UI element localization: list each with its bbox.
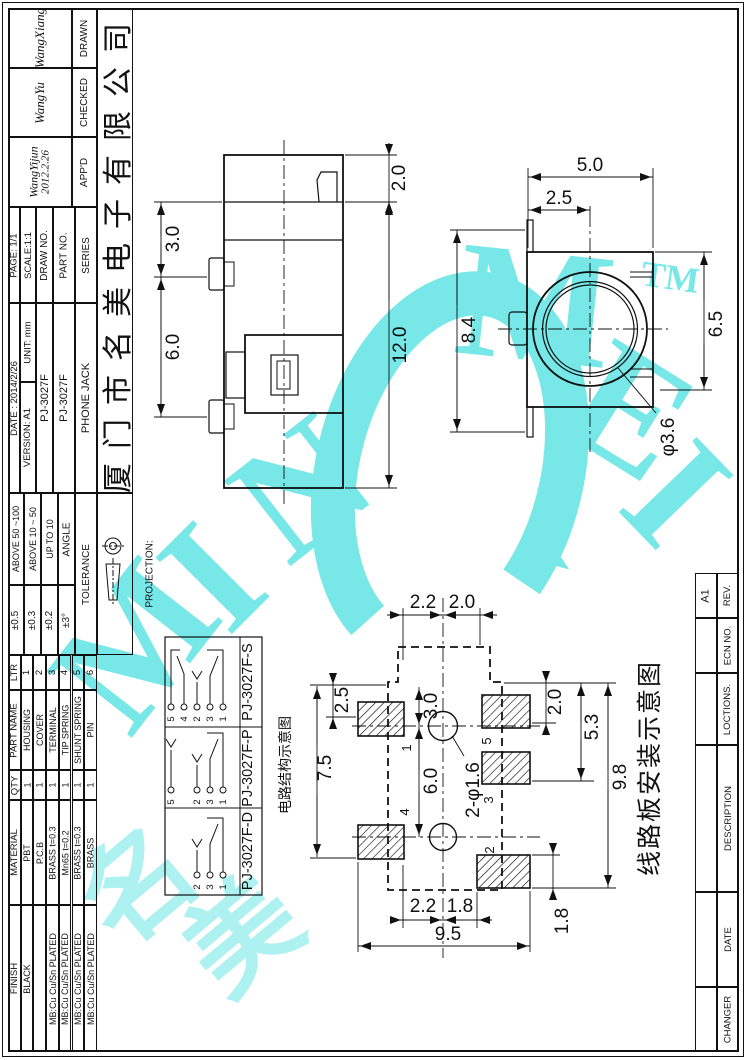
bom-row: BRASS t=0.3: [72, 800, 85, 905]
draw-no-label-cell: DRAW NO.: [36, 207, 53, 303]
date-cell: DATE : 2014/2/26: [8, 303, 20, 493]
bom-row: HOUSING: [21, 690, 34, 770]
company-name: 厦门市名美电子有限公司: [93, 9, 137, 493]
drawn-label: DRAWN: [79, 19, 90, 56]
bom-row: MB:Cu Cu/Sn PLATED: [84, 905, 97, 1052]
rev-value: A1: [700, 589, 712, 602]
description-label: DESCRIPTION: [723, 786, 734, 851]
appd-label: APP'D: [79, 157, 90, 186]
series-label-cell: SERIES: [75, 207, 97, 303]
bom-row: Mn65 t=0.2: [59, 800, 72, 905]
bom-row: 3: [46, 655, 59, 690]
description-value-cell: [695, 745, 717, 892]
scale-cell: SCALE:1:1: [20, 207, 36, 303]
bom-row: P.C.B: [33, 800, 46, 905]
bom-ltr-header: LTR: [9, 664, 20, 681]
bom-row: MB:Cu Cu/Sn PLATED: [72, 905, 85, 1052]
tol-value-3: ±0.5: [11, 610, 22, 629]
bom-row: PIN: [84, 690, 97, 770]
checked-label: CHECKED: [79, 78, 90, 127]
tol-range-1: UP TO 10: [45, 519, 55, 559]
part-no-label: PART NO.: [59, 232, 70, 278]
page-cell: PAGE: 1/1: [8, 207, 20, 303]
date-value: DATE : 2014/2/26: [9, 361, 20, 436]
tol-value-1: ±0.2: [44, 610, 55, 629]
rev-label-cell: REV.: [717, 573, 739, 618]
tol-angle-value: ±3°: [61, 612, 72, 627]
bom-qty-header-cell: QTY: [8, 770, 21, 800]
tol-range-3-cell: ABOVE 50 ~100: [8, 493, 24, 585]
ecn-label-cell: ECN NO.: [717, 618, 739, 673]
bom-row: [33, 905, 46, 1052]
rev-date-label-cell: DATE: [717, 892, 739, 987]
bom-finish-header-cell: FINISH: [8, 905, 21, 1052]
changer-label: CHANGER: [723, 996, 734, 1044]
draw-no-label: DRAW NO.: [39, 230, 50, 281]
tol-value-3-cell: ±0.5: [8, 585, 24, 655]
projection-label: PROJECTION:: [70, 540, 230, 607]
projection-cell: PROJECTION:: [97, 493, 133, 655]
rev-label: REV.: [723, 585, 734, 606]
draw-no-value: PJ-3027F: [39, 374, 51, 422]
bom-row: 6: [84, 655, 97, 690]
bom-row: COVER: [33, 690, 46, 770]
company-cell: 厦门市名美电子有限公司: [97, 8, 133, 493]
part-no-value: PJ-3027F: [58, 374, 70, 422]
bom-partname-header: PART NAME: [9, 703, 20, 757]
loctions-value-cell: [695, 673, 717, 745]
changer-value-cell: [695, 987, 717, 1052]
tol-range-2-cell: ABOVE 10 ~ 50: [24, 493, 41, 585]
bom-row: PBT: [21, 800, 34, 905]
version-cell: VERSION: A1: [20, 382, 36, 493]
tol-range-2: ABOVE 10 ~ 50: [28, 507, 38, 571]
bom-row: 1: [21, 655, 34, 690]
unit-value: UNIT: mm: [23, 321, 34, 363]
bom-qty-header: QTY: [9, 775, 20, 795]
bom-row: 1: [21, 770, 34, 800]
bom-material-header: MATERIAL: [9, 829, 20, 876]
rev-value-cell: A1: [695, 573, 717, 618]
loctions-label: LOCTIONS.: [723, 683, 734, 734]
bom-row: 1: [72, 770, 85, 800]
series-label: SERIES: [81, 237, 92, 274]
bom-row: 1: [59, 770, 72, 800]
bom-partname-header-cell: PART NAME: [8, 690, 21, 770]
bom-row: MB:Cu Cu/Sn PLATED: [59, 905, 72, 1052]
description-label-cell: DESCRIPTION: [717, 745, 739, 892]
unit-cell: UNIT: mm: [20, 303, 36, 382]
tol-value-2: ±0.3: [27, 610, 38, 629]
scale-value: SCALE:1:1: [23, 232, 34, 279]
tol-value-1-cell: ±0.2: [41, 585, 58, 655]
part-no-label-cell: PART NO.: [53, 207, 75, 303]
series-value: PHONE JACK: [80, 363, 92, 433]
loctions-label-cell: LOCTIONS.: [717, 673, 739, 745]
appd-signature-cell: WangYijun 2012.2.26: [8, 137, 72, 207]
drawn-signature: WangXiang: [32, 8, 48, 68]
rev-date-label: DATE: [723, 927, 734, 952]
draw-no-value-cell: PJ-3027F: [36, 303, 53, 493]
drawing-sheet: 2.0 12.0 3.0 6.0: [0, 0, 747, 1060]
bom-row: 2: [33, 655, 46, 690]
bom-row: 1: [46, 770, 59, 800]
bom-material-header-cell: MATERIAL: [8, 800, 21, 905]
rev-date-value-cell: [695, 892, 717, 987]
changer-label-cell: CHANGER: [717, 987, 739, 1052]
bom-row: MB:Cu Cu/Sn PLATED: [46, 905, 59, 1052]
bom-row: BRASS: [84, 800, 97, 905]
bom-row: 1: [84, 770, 97, 800]
ecn-label: ECN NO.: [723, 626, 734, 666]
checked-signature: WangYu: [32, 82, 48, 124]
bom-row: SHUNT SPRING: [72, 690, 85, 770]
appd-sig-date: 2012.2.26: [41, 146, 53, 197]
bom-row: BLACK: [21, 905, 34, 1052]
bom-row: 4: [59, 655, 72, 690]
bom-row: TIP SPRING: [59, 690, 72, 770]
drawn-signature-cell: WangXiang: [8, 8, 72, 68]
page-number: PAGE: 1/1: [9, 233, 20, 277]
tol-value-2-cell: ±0.3: [24, 585, 41, 655]
checked-signature-cell: WangYu: [8, 68, 72, 137]
appd-signature: WangYijun 2012.2.26: [28, 146, 52, 197]
tol-range-3: ABOVE 50 ~100: [11, 506, 21, 572]
bom-row: TERMINAL: [46, 690, 59, 770]
part-no-value-cell: PJ-3027F: [53, 303, 75, 493]
bom-row: 1: [33, 770, 46, 800]
ecn-value-cell: [695, 618, 717, 673]
bom-row: BRASS t=0.3: [46, 800, 59, 905]
version-value: VERSION: A1: [23, 408, 34, 467]
bom-finish-header: FINISH: [9, 963, 20, 994]
bom-ltr-header-cell: LTR: [8, 655, 21, 690]
tol-range-1-cell: UP TO 10: [41, 493, 58, 585]
series-value-cell: PHONE JACK: [75, 303, 97, 493]
bom-row: 5: [72, 655, 85, 690]
